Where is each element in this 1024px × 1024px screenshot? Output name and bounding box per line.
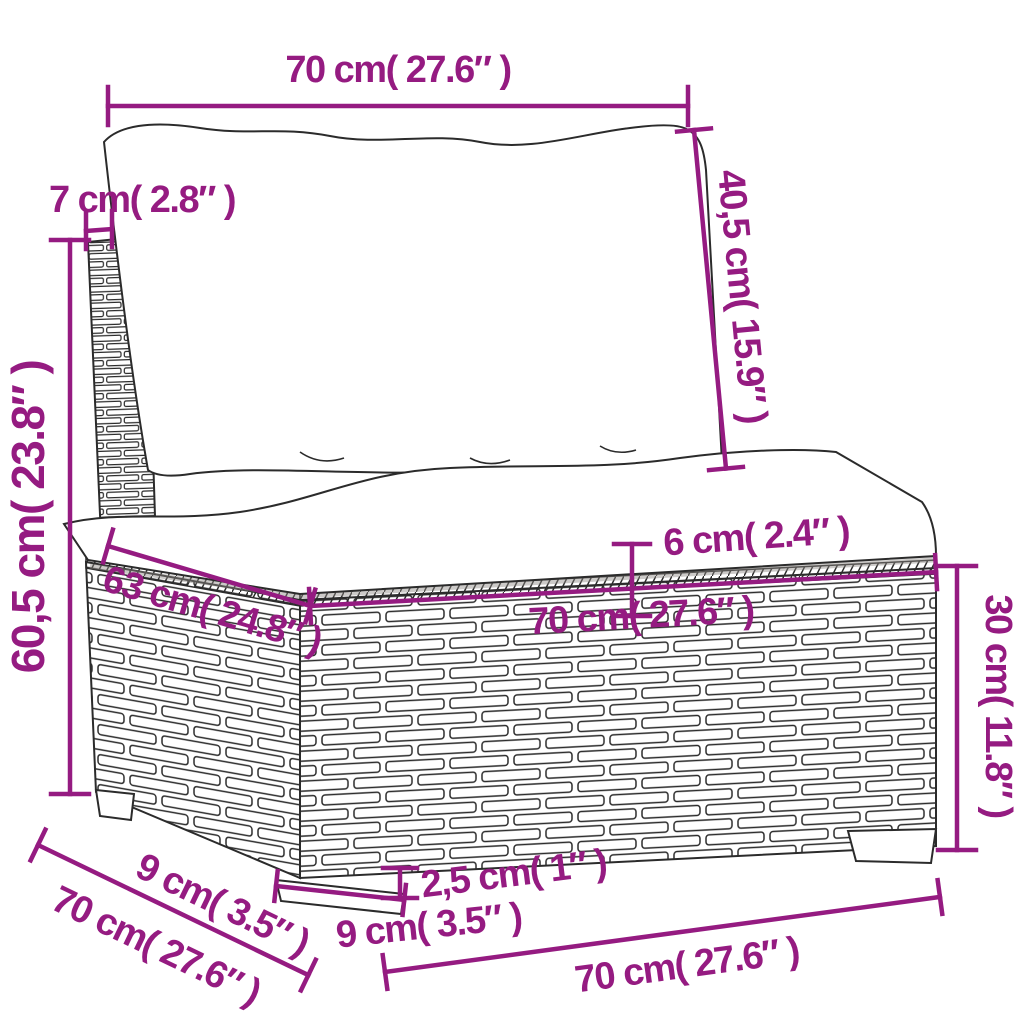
dimension-tick (709, 467, 743, 470)
dim-total-height: 60,5 cm( 23.8″ ) (2, 240, 89, 794)
dim-back-cushion-width: 70 cm( 27.6″ ) (108, 49, 688, 125)
leg-back-left (96, 790, 134, 820)
dimension-tick (383, 955, 388, 989)
sofa-dimension-drawing: 70 cm( 27.6″ ) 40,5 cm( 15.9″ ) 7 cm( 2.… (0, 0, 1024, 1024)
dimension-tick (935, 555, 937, 589)
dimension-label-base-height: 30 cm( 11.8″ ) (977, 594, 1019, 817)
dimension-tick (309, 589, 311, 623)
dimension-line (86, 229, 112, 231)
dim-base-height: 30 cm( 11.8″ ) (938, 566, 1019, 850)
dimension-tick (938, 880, 943, 914)
dimension-label-back-panel-thickness: 7 cm( 2.8″ ) (49, 179, 235, 221)
back-cushion (104, 124, 722, 475)
dimension-tick (274, 871, 277, 901)
dimension-tick (677, 128, 711, 131)
dimension-label-total-height: 60,5 cm( 23.8″ ) (2, 361, 54, 674)
leg-front-right (848, 829, 936, 863)
dimension-diagram: 70 cm( 27.6″ ) 40,5 cm( 15.9″ ) 7 cm( 2.… (0, 0, 1024, 1024)
dimension-label-back-cushion-width: 70 cm( 27.6″ ) (285, 49, 510, 91)
